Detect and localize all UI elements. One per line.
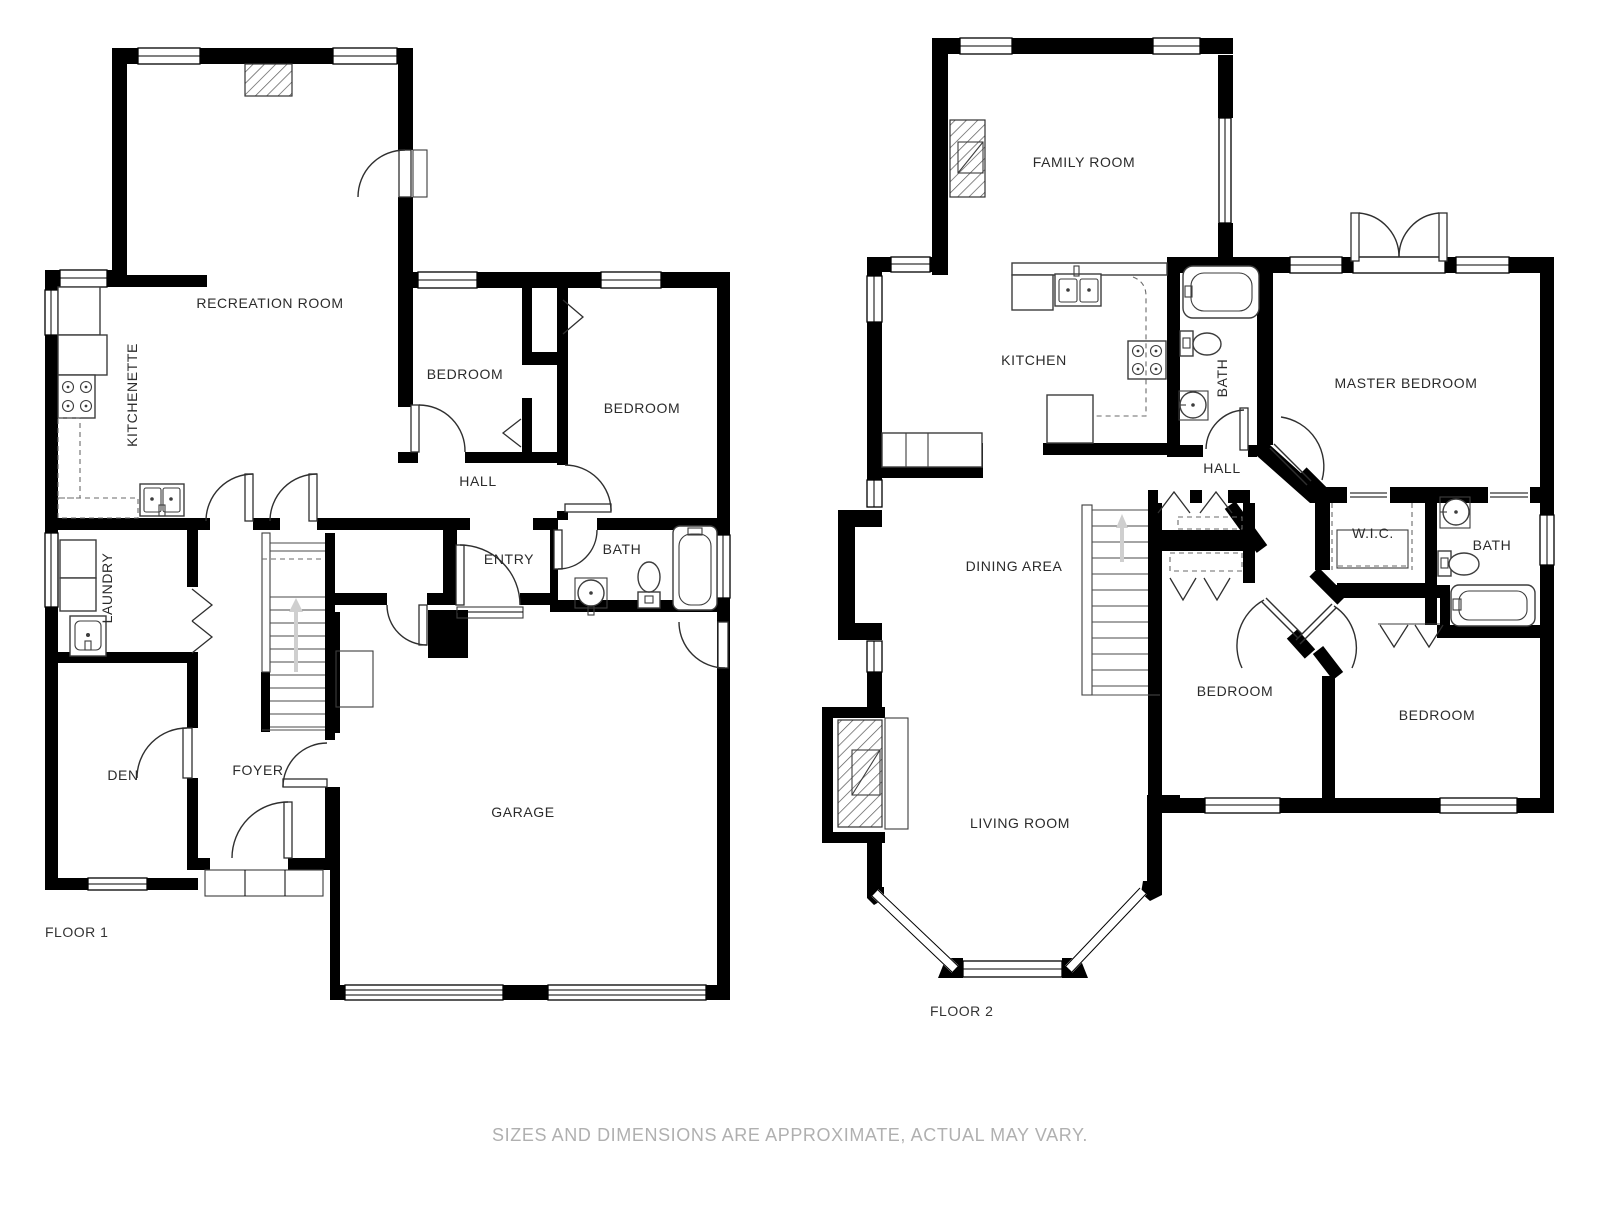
workbench-icon: [336, 651, 373, 707]
door-icon: [232, 802, 292, 858]
floor2-dining-area-label: DINING AREA: [966, 558, 1063, 574]
floor1-recreation-label: RECREATION ROOM: [196, 295, 343, 311]
floor2-kitchen-label: KITCHEN: [1001, 352, 1067, 368]
door-icon: [679, 622, 728, 668]
floor2-family-room-label: FAMILY ROOM: [1033, 154, 1136, 170]
window-icon: [891, 257, 930, 272]
bathtub-icon: [1451, 585, 1535, 626]
floor1-bedroom-large-label: BEDROOM: [604, 400, 681, 416]
window-icon: [960, 38, 1012, 54]
floor2-bedroom-right-label: BEDROOM: [1399, 707, 1476, 723]
floor2-title: FLOOR 2: [930, 1003, 993, 1019]
stove-icon: [1128, 341, 1166, 379]
floor2-hall-label: HALL: [1203, 460, 1240, 476]
garage-door-icon: [548, 985, 706, 1000]
disclaimer-text: SIZES AND DIMENSIONS ARE APPROXIMATE, AC…: [492, 1125, 1088, 1145]
floor1-kitchenette-label: KITCHENETTE: [124, 343, 140, 447]
door-icon: [1206, 408, 1248, 450]
french-door-icon: [1351, 213, 1447, 261]
window-icon: [1290, 257, 1342, 273]
door-icon: [1270, 417, 1324, 485]
floor1-den-label: DEN: [107, 767, 138, 783]
porch-steps-icon: [205, 870, 323, 896]
floor2-bath-lower-label: BATH: [1473, 537, 1512, 553]
bathtub-icon: [1183, 266, 1259, 318]
floor1-bedroom-small-label: BEDROOM: [427, 366, 504, 382]
garage-door-icon: [345, 985, 503, 1000]
bifold-door-icon: [192, 589, 212, 621]
pocket-door-icon: [1490, 493, 1528, 497]
kitchen-counter-icon: [58, 287, 107, 375]
floor1-walls: [45, 48, 730, 1000]
fireplace-icon: [950, 120, 985, 197]
floor2-master-bedroom-label: MASTER BEDROOM: [1335, 375, 1478, 391]
stove-icon: [58, 375, 95, 418]
bifold-door-icon: [192, 621, 212, 653]
floor1-hall-label: HALL: [459, 473, 496, 489]
window-icon: [88, 878, 147, 890]
closet-door-icon: [1170, 578, 1196, 600]
door-icon: [565, 465, 611, 512]
toilet-icon: [638, 562, 660, 608]
floor1-fixtures: [58, 64, 717, 896]
washer-dryer-icon: [60, 540, 96, 611]
window-icon: [1440, 798, 1517, 813]
floor1-laundry-label: LAUNDRY: [99, 553, 115, 624]
closet-door-icon: [503, 419, 521, 447]
floor1-garage-label: GARAGE: [491, 804, 555, 820]
toilet-icon: [1180, 331, 1221, 356]
door-icon: [554, 530, 597, 569]
floor-plan-canvas: RECREATION ROOM KITCHENETTE BEDROOM BEDR…: [0, 0, 1600, 1200]
floor2-bath-upper-label: BATH: [1214, 359, 1230, 398]
closet-door-icon: [1158, 492, 1190, 513]
door-icon: [283, 743, 327, 787]
window-icon: [60, 270, 107, 287]
floor1-entry-label: ENTRY: [484, 551, 534, 567]
closet-door-icon: [1204, 578, 1230, 600]
kitchen-sink-icon: [140, 484, 184, 516]
door-icon: [387, 605, 427, 645]
french-door-opening: [1353, 257, 1445, 273]
closet-door-icon: [1380, 625, 1408, 647]
chimney-icon: [245, 64, 292, 96]
floor1-title: FLOOR 1: [45, 924, 108, 940]
window-icon: [138, 48, 200, 64]
floor1-plan: RECREATION ROOM KITCHENETTE BEDROOM BEDR…: [45, 48, 730, 1000]
floor1-bath-label: BATH: [603, 541, 642, 557]
door-icon: [411, 405, 465, 452]
toilet-icon: [1438, 551, 1479, 576]
door-icon: [137, 728, 192, 778]
floor2-bedroom-middle-label: BEDROOM: [1197, 683, 1274, 699]
window-icon: [717, 535, 730, 598]
window-icon: [601, 272, 661, 288]
floor2-wic-label: W.I.C.: [1352, 525, 1394, 541]
window-icon: [45, 533, 58, 607]
window-icon: [418, 272, 477, 288]
door-icon: [358, 150, 427, 197]
door-icon: [206, 474, 253, 521]
window-icon: [1456, 257, 1509, 273]
window-icon: [1205, 798, 1280, 813]
window-icon: [1540, 515, 1554, 565]
counter-outline: [58, 498, 138, 518]
bathroom-sink-icon: [1179, 391, 1208, 420]
floor1-stairs: [262, 533, 325, 730]
sliding-glass-door-icon: [1219, 118, 1231, 223]
floor2-plan: FAMILY ROOM KITCHEN BATH MASTER BEDROOM …: [822, 38, 1554, 1019]
window-icon: [1153, 38, 1200, 54]
kitchen-island-icon: [1047, 395, 1093, 443]
window-icon: [867, 641, 882, 672]
floor1-foyer-label: FOYER: [232, 762, 283, 778]
door-icon: [270, 474, 317, 521]
bathtub-icon: [673, 526, 717, 610]
floor1-labels: RECREATION ROOM KITCHENETTE BEDROOM BEDR…: [45, 295, 680, 940]
fireplace-icon: [838, 718, 908, 829]
counter-outline: [58, 418, 80, 498]
window-icon: [867, 480, 882, 507]
window-icon: [867, 276, 882, 322]
refrigerator-icon: [882, 433, 982, 467]
window-icon: [45, 290, 58, 335]
door-icon: [1237, 598, 1302, 668]
pocket-door-icon: [1350, 493, 1387, 497]
floor1-doors: [137, 150, 728, 858]
bay-window-icon: [872, 888, 1146, 977]
window-icon: [333, 48, 397, 64]
floor2-living-room-label: LIVING ROOM: [970, 815, 1070, 831]
floor-plan-page: RECREATION ROOM KITCHENETTE BEDROOM BEDR…: [0, 0, 1600, 1200]
